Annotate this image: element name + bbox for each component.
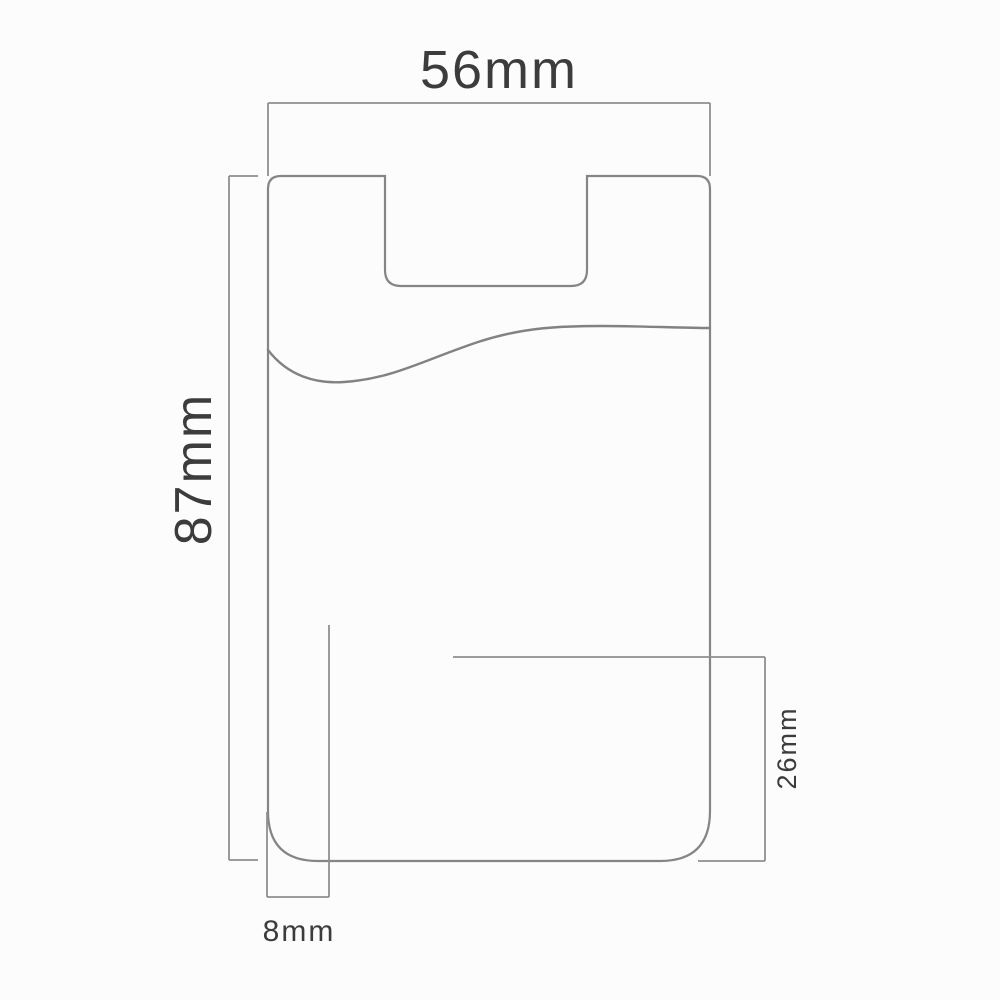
height-dimension: 87mm bbox=[165, 176, 258, 860]
width-dimension: 56mm bbox=[268, 40, 710, 176]
side-width-dimension-label: 8mm bbox=[263, 915, 336, 948]
width-dimension-label: 56mm bbox=[420, 40, 578, 100]
lower-section-dimension-label: 26mm bbox=[772, 706, 802, 789]
pocket-opening-curve bbox=[268, 326, 710, 382]
card-sleeve-outline bbox=[268, 176, 710, 861]
height-dimension-label: 87mm bbox=[165, 393, 223, 545]
side-width-dimension: 8mm bbox=[263, 625, 336, 948]
card-sleeve-diagram: 56mm 87mm 8mm 26mm bbox=[0, 0, 1000, 1000]
lower-section-dimension: 26mm bbox=[453, 657, 802, 861]
dimension-drawing-canvas: 56mm 87mm 8mm 26mm bbox=[0, 0, 1000, 1000]
